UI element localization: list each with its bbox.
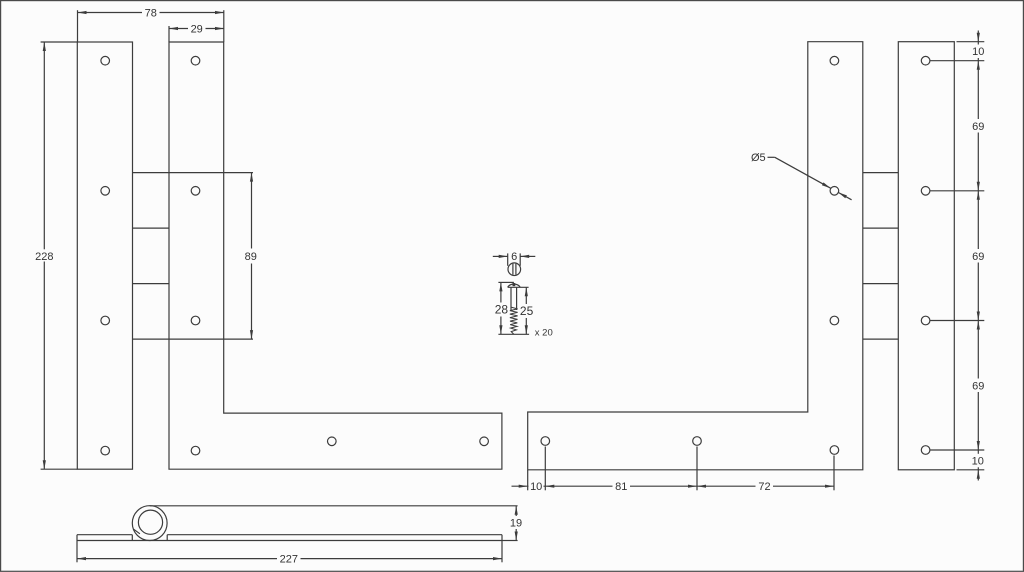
svg-text:25: 25 [520, 304, 534, 318]
svg-text:69: 69 [972, 380, 984, 392]
svg-text:78: 78 [145, 7, 157, 19]
svg-text:89: 89 [245, 251, 257, 263]
svg-text:Ø5: Ø5 [751, 152, 766, 164]
svg-text:69: 69 [972, 251, 984, 263]
svg-text:81: 81 [615, 481, 627, 493]
svg-text:10: 10 [972, 455, 984, 467]
svg-text:28: 28 [495, 303, 509, 317]
svg-text:10: 10 [972, 46, 984, 58]
svg-text:29: 29 [191, 23, 203, 35]
svg-text:19: 19 [510, 518, 522, 530]
svg-text:10: 10 [530, 481, 542, 493]
svg-text:227: 227 [280, 554, 298, 566]
svg-text:6: 6 [511, 251, 517, 263]
svg-text:228: 228 [35, 251, 53, 263]
svg-text:69: 69 [972, 121, 984, 133]
svg-text:x 20: x 20 [535, 327, 553, 338]
svg-text:72: 72 [758, 481, 770, 493]
